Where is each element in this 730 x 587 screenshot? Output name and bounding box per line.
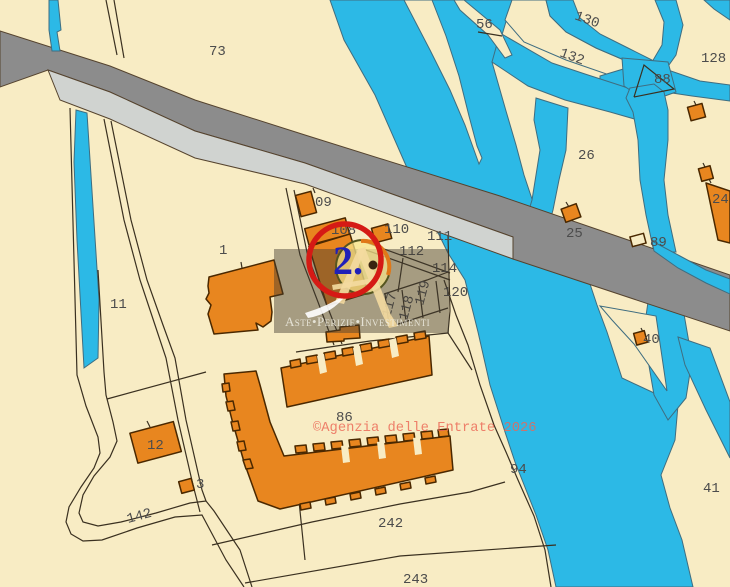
svg-text:40: 40: [643, 332, 660, 348]
svg-text:88: 88: [654, 72, 671, 88]
svg-text:89: 89: [650, 235, 667, 251]
svg-text:2.: 2.: [333, 238, 363, 283]
svg-text:3: 3: [196, 477, 204, 493]
svg-text:11: 11: [110, 297, 127, 313]
svg-text:©Agenzia delle Entrate 2026: ©Agenzia delle Entrate 2026: [313, 420, 537, 436]
svg-text:73: 73: [209, 44, 226, 60]
svg-text:24: 24: [712, 192, 729, 208]
svg-text:09: 09: [315, 195, 332, 211]
svg-text:94: 94: [510, 462, 527, 478]
svg-text:111: 111: [427, 229, 452, 245]
svg-text:128: 128: [701, 51, 726, 67]
svg-text:110: 110: [384, 222, 409, 238]
svg-text:242: 242: [378, 516, 403, 532]
svg-text:26: 26: [578, 148, 595, 164]
svg-text:56: 56: [476, 17, 493, 33]
svg-text:25: 25: [566, 226, 583, 242]
svg-text:1: 1: [219, 243, 227, 259]
svg-text:41: 41: [703, 481, 720, 497]
svg-text:Aste•Perizie•Investimenti: Aste•Perizie•Investimenti: [285, 314, 430, 329]
svg-text:243: 243: [403, 572, 428, 587]
svg-text:12: 12: [147, 438, 164, 454]
